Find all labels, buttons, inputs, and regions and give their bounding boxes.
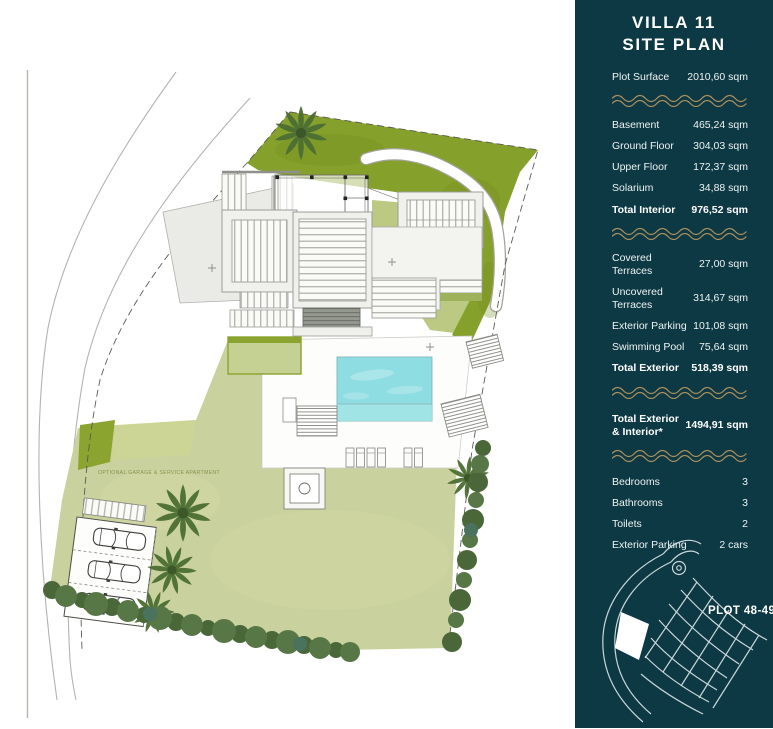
plot-surface-value: 2010,60 sqm	[687, 71, 748, 84]
planted-platform	[228, 337, 301, 374]
total-exterior-row: Total Exterior 518,39 sqm	[612, 362, 748, 375]
exterior-row: Uncovered Terraces 314,67 sqm	[612, 286, 748, 312]
plot-surface-row: Plot Surface 2010,60 sqm	[612, 71, 748, 84]
interior-row: Upper Floor 172,37 sqm	[612, 161, 748, 174]
wave-divider	[612, 94, 748, 107]
exterior-row: Exterior Parking 101,08 sqm	[612, 320, 748, 333]
exterior-row: Covered Terraces 27,00 sqm	[612, 252, 748, 278]
spa-square	[284, 468, 325, 509]
plot-number-label: PLOT 48-49	[708, 605, 773, 617]
feature-row: Bathrooms 3	[612, 497, 748, 510]
feature-row: Bedrooms 3	[612, 476, 748, 489]
wave-divider	[612, 449, 748, 462]
plan-note-label: OPTIONAL GARAGE & SERVICE APARTMENT	[98, 470, 220, 476]
siteplan-title: SITE PLAN	[575, 34, 773, 56]
villa-title: VILLA 11	[575, 12, 773, 34]
plot-surface-label: Plot Surface	[612, 71, 669, 84]
interior-row: Basement 465,24 sqm	[612, 119, 748, 132]
site-plan-svg: OPTIONAL GARAGE & SERVICE APARTMENT	[0, 0, 573, 728]
info-sidebar: VILLA 11 SITE PLAN Plot Surface 2010,60 …	[575, 0, 773, 728]
exterior-row: Swimming Pool 75,64 sqm	[612, 341, 748, 354]
interior-row: Ground Floor 304,03 sqm	[612, 140, 748, 153]
highlighted-plot	[615, 612, 649, 660]
plot-location-map: PLOT 48-49	[575, 532, 773, 724]
interior-row: Solarium 34,88 sqm	[612, 182, 748, 195]
grand-total-row: Total Exterior & Interior* 1494,91 sqm	[612, 413, 748, 439]
sun-loungers	[346, 448, 423, 467]
site-plan-drawing: OPTIONAL GARAGE & SERVICE APARTMENT	[0, 0, 573, 728]
sidebar-title: VILLA 11 SITE PLAN	[575, 0, 773, 57]
feature-row: Toilets 2	[612, 518, 748, 531]
wave-divider	[612, 227, 748, 240]
wave-divider	[612, 386, 748, 399]
total-interior-row: Total Interior 976,52 sqm	[612, 204, 748, 217]
swimming-pool	[337, 357, 432, 421]
